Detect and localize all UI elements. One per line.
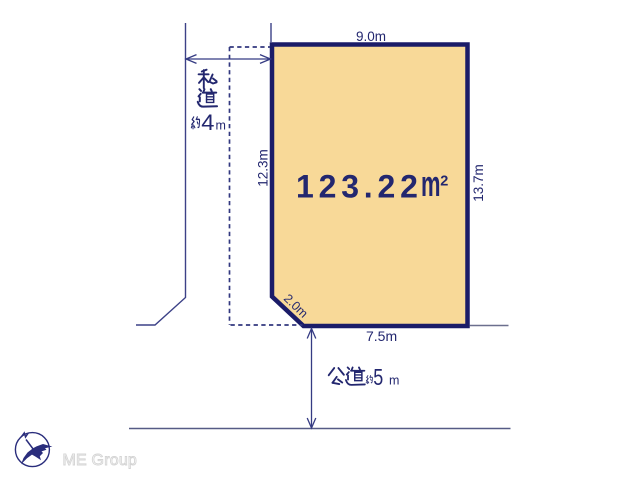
svg-text:123.22: 123.22 [296,169,423,205]
svg-text:m: m [216,118,226,132]
svg-text:4: 4 [201,110,214,135]
svg-text:m: m [421,163,441,204]
svg-text:ME Group: ME Group [63,452,138,469]
svg-text:7.5m: 7.5m [366,328,397,344]
svg-text:12.3m: 12.3m [256,149,271,187]
svg-text:2: 2 [440,173,448,189]
svg-text:5: 5 [373,364,383,390]
svg-text:9.0m: 9.0m [356,29,386,44]
svg-text:13.7m: 13.7m [471,164,486,202]
svg-text:m: m [389,374,399,388]
